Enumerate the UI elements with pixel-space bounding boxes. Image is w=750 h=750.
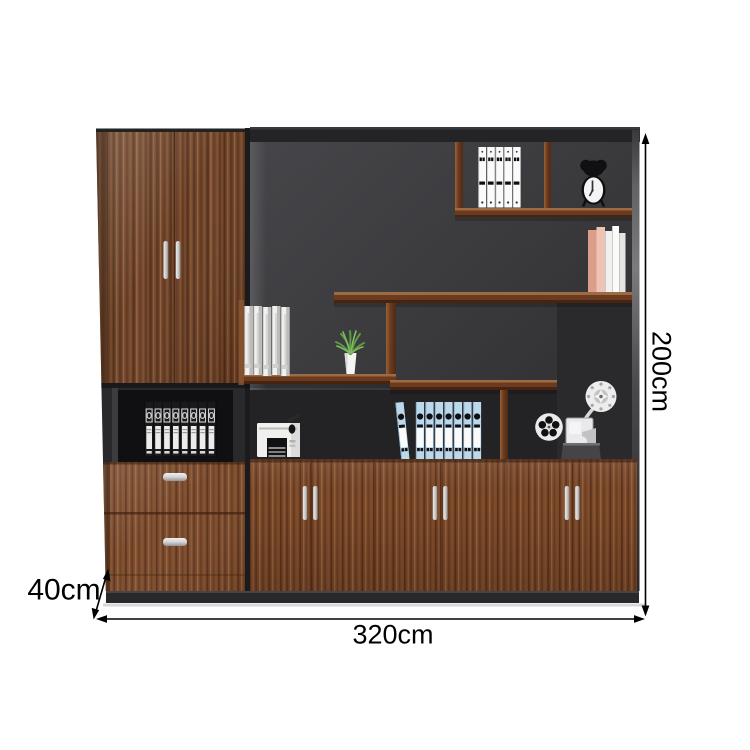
svg-text:40cm: 40cm bbox=[27, 574, 100, 607]
svg-text:200cm: 200cm bbox=[647, 331, 677, 412]
svg-text:320cm: 320cm bbox=[352, 620, 433, 650]
